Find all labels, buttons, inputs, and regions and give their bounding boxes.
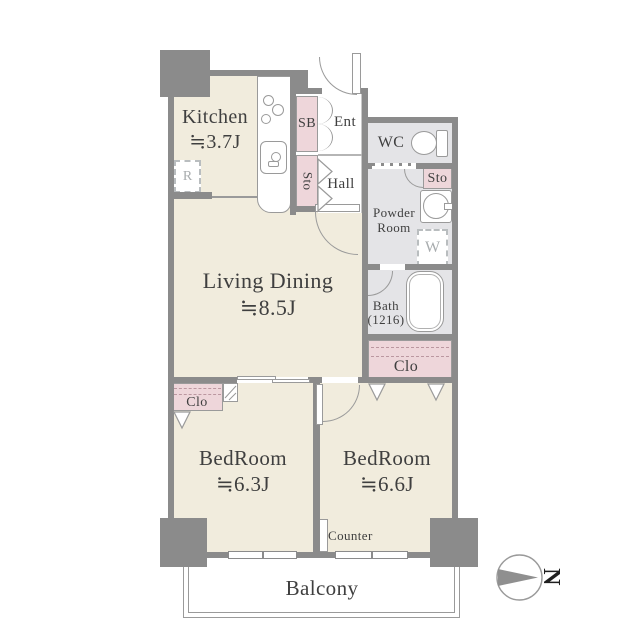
wall xyxy=(296,88,322,94)
kitchen-size: ≒3.7J xyxy=(189,130,241,155)
storage-hall-label: Sto xyxy=(296,155,318,207)
kitchen-boundary-line xyxy=(212,196,258,198)
shoe-box-label: SB xyxy=(295,115,319,132)
closet-right-dash-1 xyxy=(371,347,449,348)
sliding-door-panel xyxy=(272,379,310,383)
window-tick xyxy=(262,551,264,559)
bathtub-inner-line xyxy=(409,274,441,329)
floor-plan: R W xyxy=(0,0,640,640)
balcony-label: Balcony xyxy=(258,574,386,602)
toilet-tank xyxy=(436,130,448,157)
wall xyxy=(168,552,458,558)
stove-burner-icon xyxy=(272,104,284,116)
stove-burner-icon xyxy=(261,114,271,124)
bedroom-left-name: BedRoom xyxy=(199,445,287,471)
living-dining-name: Living Dining xyxy=(203,267,333,295)
powder-room-label: Powder Room xyxy=(366,204,422,238)
compass-needle-icon xyxy=(498,569,538,586)
bedroom-left-size: ≒6.3J xyxy=(216,471,270,497)
wall xyxy=(362,117,458,123)
bedroom-right-name: BedRoom xyxy=(343,445,431,471)
closet-left-label: Clo xyxy=(181,395,213,410)
closet-left-dash-1 xyxy=(174,388,221,389)
hall-door-leaf xyxy=(315,204,360,212)
entrance-door-arc xyxy=(319,57,357,95)
compass-north-label: N xyxy=(536,564,566,590)
bath-name: Bath xyxy=(373,299,399,313)
washer-label: W xyxy=(425,239,440,257)
bedroom-left-label: BedRoom ≒6.3J xyxy=(183,444,303,498)
refrigerator-label: R xyxy=(183,169,192,185)
wall xyxy=(452,117,458,558)
bedroom-right-label: BedRoom ≒6.6J xyxy=(327,444,447,498)
window-tick xyxy=(371,551,373,559)
wall xyxy=(168,192,212,199)
kitchen-name: Kitchen xyxy=(182,105,248,130)
bedroom-right-size: ≒6.6J xyxy=(360,471,414,497)
bath-size: (1216) xyxy=(367,313,404,327)
stove-burner-icon xyxy=(263,95,274,106)
hall-label: Hall xyxy=(324,176,358,193)
living-dining-size: ≒8.5J xyxy=(240,294,297,322)
sink-drain xyxy=(268,161,279,167)
bath-label: Bath (1216) xyxy=(364,298,408,328)
counter-label: Counter xyxy=(328,529,376,544)
wall xyxy=(358,377,458,383)
closet-right-label: Clo xyxy=(386,358,426,376)
bedroom-right-door-leaf xyxy=(316,384,323,425)
pillar xyxy=(430,518,478,567)
sliding-door-panel xyxy=(237,376,276,380)
wall xyxy=(168,377,237,383)
entrance-step-line xyxy=(318,154,362,156)
kitchen-label: Kitchen ≒3.7J xyxy=(170,106,260,154)
bath-door-gap xyxy=(380,264,405,270)
storage-powder-label: Sto xyxy=(423,169,452,188)
entrance-label: Ent xyxy=(329,114,361,131)
toilet-bowl-icon xyxy=(411,131,437,155)
living-dining-label: Living Dining ≒8.5J xyxy=(188,267,348,321)
wc-label: WC xyxy=(374,134,408,152)
pillar xyxy=(160,50,210,97)
refrigerator-space: R xyxy=(174,160,201,193)
wall xyxy=(368,334,452,340)
duct-space xyxy=(223,383,238,402)
pillar xyxy=(160,518,207,567)
